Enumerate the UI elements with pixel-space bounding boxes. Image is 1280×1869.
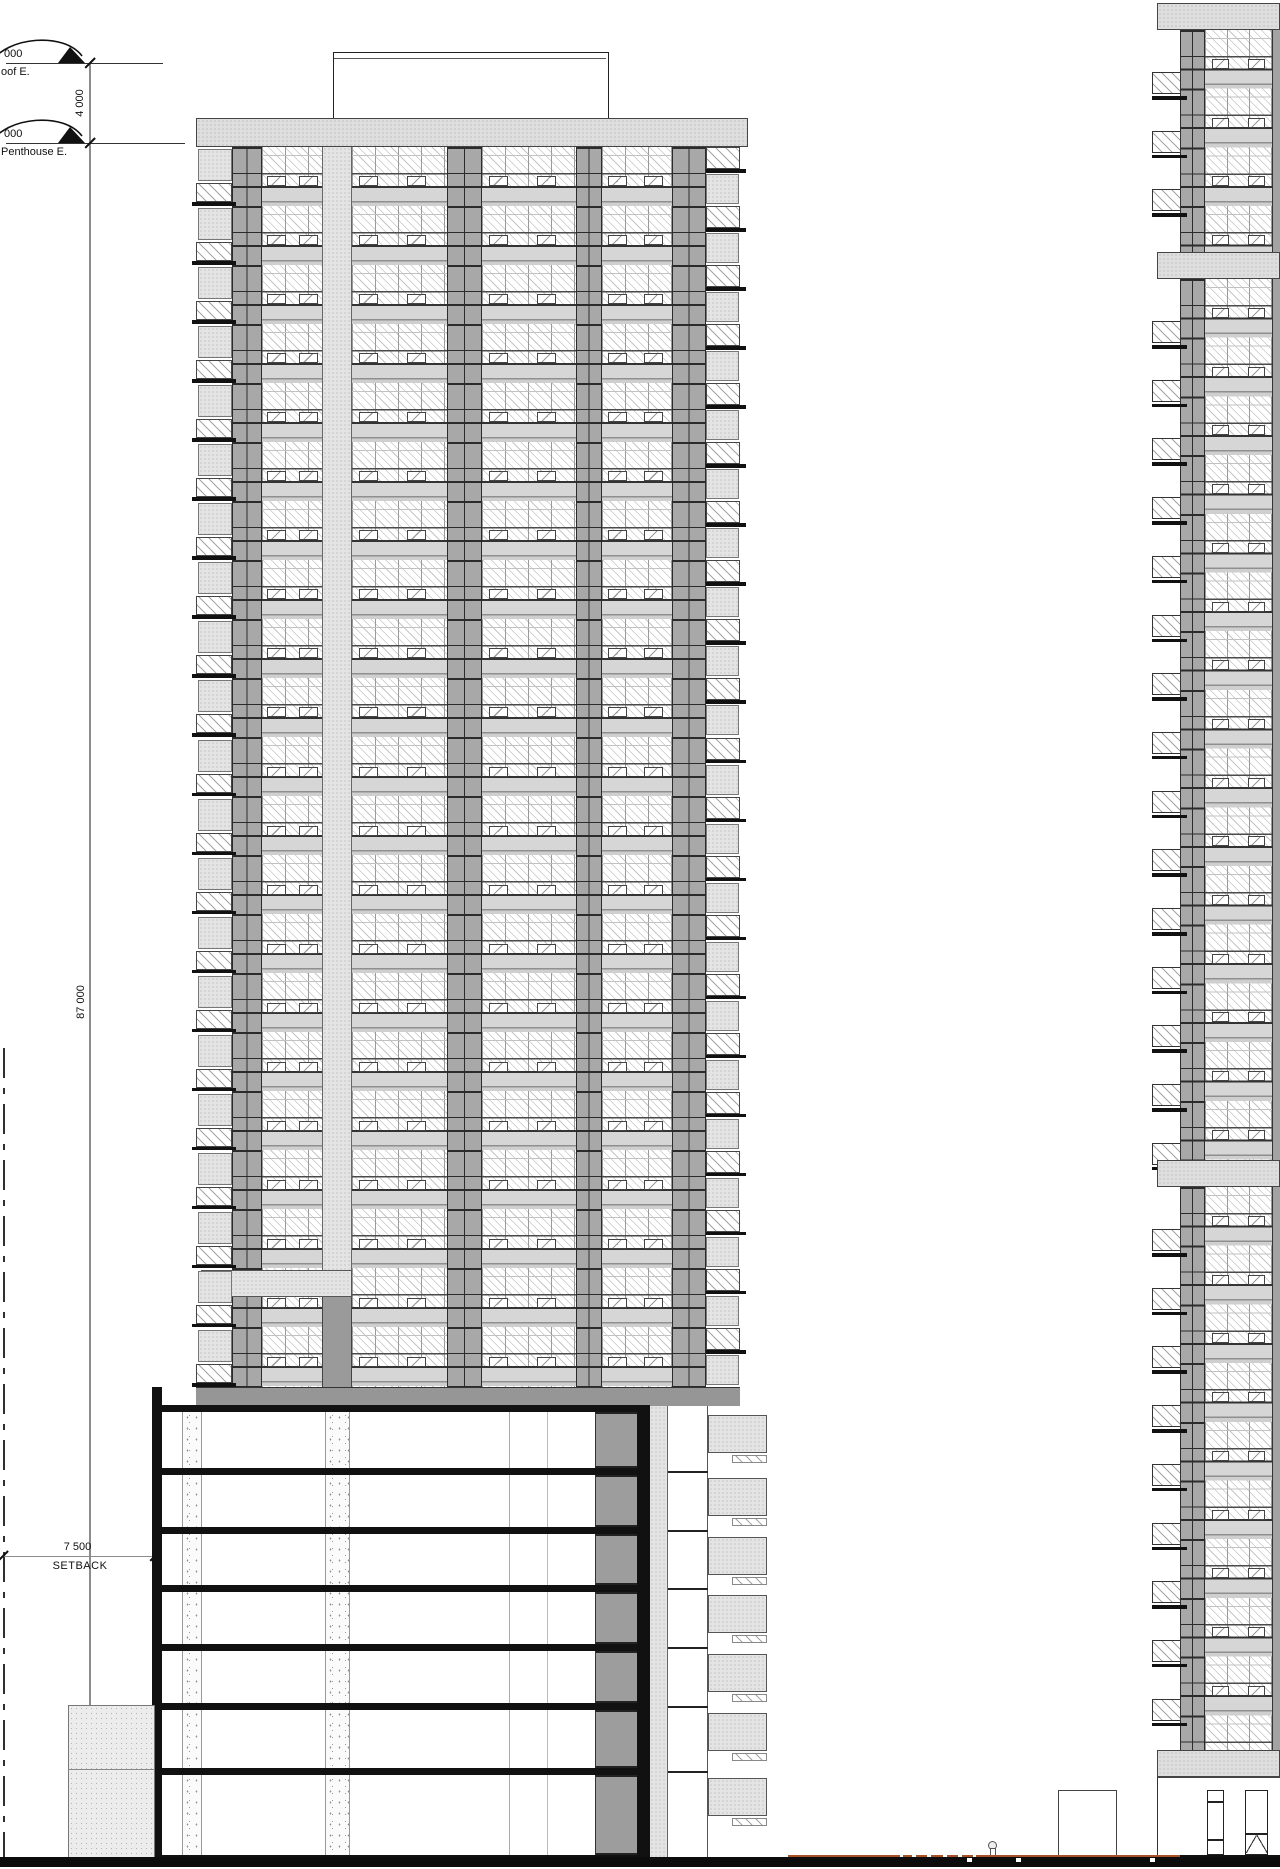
right-strip-balcony-panel (706, 442, 740, 464)
right-strip-stipple-panel (706, 765, 739, 795)
window-vent (407, 944, 426, 954)
left-strip-slab (192, 1029, 236, 1033)
level-penthouse-value: 000 (4, 128, 22, 140)
window-vent (1212, 367, 1229, 377)
podium-floor-slab (155, 1768, 650, 1775)
window-vent (644, 1180, 663, 1190)
window-vent (1212, 1510, 1229, 1520)
window-vent (359, 412, 378, 422)
neighbor-balcony (1152, 1581, 1181, 1603)
neighbor-balcony-slab (1152, 1370, 1187, 1374)
window-vent (489, 176, 508, 186)
left-strip-balcony-panel (196, 360, 232, 379)
left-strip-stipple-panel (198, 740, 232, 772)
neighbor-balcony-slab (1152, 1049, 1187, 1053)
neighbor-balcony (1152, 849, 1181, 871)
window-vent (407, 353, 426, 363)
right-strip-balcony-panel (706, 738, 740, 760)
window-vent (1248, 1510, 1265, 1520)
window-vent (407, 1062, 426, 1072)
left-strip-slab (192, 852, 236, 856)
left-strip-balcony-panel (196, 596, 232, 615)
beyond-hatch-wedge (732, 1455, 767, 1463)
left-strip-balcony-panel (196, 1305, 232, 1324)
left-strip-balcony-panel (196, 774, 232, 793)
right-strip-slab (706, 760, 746, 764)
window-vent (407, 235, 426, 245)
neighbor-balcony (1152, 380, 1181, 402)
right-strip-stipple-panel (706, 1119, 739, 1149)
right-strip-slab (706, 169, 746, 173)
podium-right-panel (595, 1534, 637, 1585)
podium-floor-slab (155, 1585, 650, 1592)
window-vent (537, 1298, 556, 1308)
architectural-sheet: 000 oof E. 000 Penthouse E. 4 000 87 000… (0, 0, 1280, 1869)
ground-line (0, 1857, 1280, 1867)
left-strip-stipple-panel (198, 1330, 232, 1362)
right-strip-stipple-panel (706, 883, 739, 913)
podium-floor-slab (155, 1703, 650, 1710)
window-vent (489, 826, 508, 836)
right-strip-balcony-panel (706, 147, 740, 169)
window-vent (608, 826, 627, 836)
penthouse-roof-box (333, 52, 609, 120)
beyond-floor-line (668, 1771, 708, 1773)
window-vent (608, 1357, 627, 1367)
window-vent (644, 826, 663, 836)
right-strip-balcony-panel (706, 619, 740, 641)
neighbor-pier (1180, 30, 1205, 252)
window-vent (407, 412, 426, 422)
window-vent (359, 1003, 378, 1013)
tower-pier (576, 147, 602, 1387)
window-vent (359, 530, 378, 540)
left-strip-stipple-panel (198, 858, 232, 890)
window-vent (608, 1121, 627, 1131)
kiosk-box (1058, 1790, 1117, 1857)
left-strip-slab (192, 556, 236, 560)
podium-floor-slab (155, 1527, 650, 1534)
window-vent (267, 1003, 286, 1013)
dim-4000-label: 4 000 (74, 83, 86, 123)
neighbor-balcony (1152, 615, 1181, 637)
right-strip-balcony-panel (706, 265, 740, 287)
podium-interior (162, 1412, 650, 1857)
left-strip-slab (192, 1147, 236, 1151)
window-vent (537, 826, 556, 836)
left-strip-balcony-panel (196, 1187, 232, 1206)
window-vent (1248, 1686, 1265, 1696)
neighbor-balcony (1152, 72, 1181, 94)
left-strip-balcony-panel (196, 1069, 232, 1088)
neighbor-balcony (1152, 1464, 1181, 1486)
window-vent (299, 1062, 318, 1072)
window-vent (359, 648, 378, 658)
left-strip-balcony-panel (196, 1010, 232, 1029)
beyond-hatch-wedge (732, 1818, 767, 1826)
beyond-stipple-panel (708, 1654, 767, 1692)
window-vent (489, 235, 508, 245)
window-vent (537, 176, 556, 186)
window-sill (1208, 1839, 1223, 1841)
window-vent (359, 1298, 378, 1308)
neighbor-balcony-slab (1152, 697, 1187, 701)
window-vent (359, 944, 378, 954)
window-vent (359, 235, 378, 245)
right-strip-stipple-panel (706, 469, 739, 499)
window-vent (299, 707, 318, 717)
left-strip-balcony-panel (196, 714, 232, 733)
window-vent (489, 767, 508, 777)
window-vent (359, 589, 378, 599)
window-vent (489, 1357, 508, 1367)
window-vent (267, 294, 286, 304)
neighbor-balcony (1152, 1288, 1181, 1310)
neighbor-balcony (1152, 556, 1181, 578)
neighbor-window-bay (1205, 1187, 1280, 1750)
window-vent (1212, 778, 1229, 788)
window-vent (489, 1121, 508, 1131)
window-vent (299, 767, 318, 777)
window-vent (489, 1239, 508, 1249)
left-strip-stipple-panel (198, 621, 232, 653)
window-vent (267, 353, 286, 363)
left-strip-slab (192, 379, 236, 383)
window-vent (608, 767, 627, 777)
window-vent (407, 471, 426, 481)
vertical-dimension-line (89, 63, 91, 1862)
neighbor-right-edge (1272, 1187, 1280, 1750)
neighbor-balcony-slab (1152, 991, 1187, 995)
beyond-floor-line (668, 1471, 708, 1473)
window-vent (1212, 118, 1229, 128)
ramp-block (68, 1705, 155, 1860)
window-vent (359, 1062, 378, 1072)
window-vent (1212, 660, 1229, 670)
right-strip-stipple-panel (706, 942, 739, 972)
window-vent (359, 294, 378, 304)
ramp-block-divider (68, 1769, 155, 1770)
window-vent (1248, 484, 1265, 494)
window-vent (608, 1239, 627, 1249)
window-vent (537, 1239, 556, 1249)
tower-core-below (322, 1297, 352, 1387)
neighbor-balcony-slab (1152, 639, 1187, 643)
left-strip-slab (192, 261, 236, 265)
left-strip-slab (192, 320, 236, 324)
podium-beyond-panel-column (708, 1406, 768, 1857)
window-vent (1212, 1012, 1229, 1022)
neighbor-balcony (1152, 189, 1181, 211)
right-strip-stipple-panel (706, 646, 739, 676)
window-vent (1248, 235, 1265, 245)
window-vent (608, 1180, 627, 1190)
window-vent (537, 530, 556, 540)
left-strip-stipple-panel (198, 503, 232, 535)
beyond-hatch-wedge (732, 1518, 767, 1526)
window-vent (1248, 660, 1265, 670)
window-vent (608, 707, 627, 717)
neighbor-balcony (1152, 1699, 1181, 1721)
left-strip-balcony-panel (196, 655, 232, 674)
window-vent (267, 471, 286, 481)
window-vent (299, 176, 318, 186)
left-strip-stipple-panel (198, 1094, 232, 1126)
window-vent (537, 412, 556, 422)
window-vent (1248, 1071, 1265, 1081)
window-vent (608, 176, 627, 186)
right-strip-stipple-panel (706, 1060, 739, 1090)
window-vent (1248, 1012, 1265, 1022)
window-vent (407, 530, 426, 540)
window-vent (1248, 1451, 1265, 1461)
window-vent (1212, 59, 1229, 69)
window-vent (608, 1298, 627, 1308)
right-strip-balcony-panel (706, 1151, 740, 1173)
neighbor-balcony-slab (1152, 815, 1187, 819)
right-strip-balcony-panel (706, 974, 740, 996)
window-vent (1212, 235, 1229, 245)
window-vent (299, 589, 318, 599)
left-strip-slab (192, 1088, 236, 1092)
neighbor-slab-band (1157, 252, 1280, 279)
window-vent (537, 235, 556, 245)
ground-gap-3 (1150, 1858, 1155, 1862)
left-strip-stipple-panel (198, 444, 232, 476)
left-strip-stipple-panel (198, 326, 232, 358)
podium-right-panel (595, 1651, 637, 1703)
left-strip-stipple-panel (198, 680, 232, 712)
window-vent (407, 767, 426, 777)
right-strip-slab (706, 1350, 746, 1354)
left-strip-stipple-panel (198, 562, 232, 594)
beyond-hatch-wedge (732, 1694, 767, 1702)
neighbor-balcony (1152, 1084, 1181, 1106)
right-strip-stipple-panel (706, 174, 739, 204)
window-vent (1248, 1568, 1265, 1578)
window-vent (537, 1121, 556, 1131)
tower-left-strip (196, 147, 232, 1387)
window-vent (299, 471, 318, 481)
window-vent (489, 885, 508, 895)
property-ground-red-line (788, 1855, 1180, 1857)
left-strip-balcony-panel (196, 242, 232, 261)
window-vent (299, 235, 318, 245)
window-vent (267, 826, 286, 836)
window-vent (1212, 425, 1229, 435)
window-vent (489, 1298, 508, 1308)
left-strip-stipple-panel (198, 917, 232, 949)
window-vent (299, 1357, 318, 1367)
left-strip-slab (192, 1265, 236, 1269)
level-roof-value: 000 (4, 48, 22, 60)
right-strip-stipple-panel (706, 587, 739, 617)
left-strip-stipple-panel (198, 1271, 232, 1303)
beyond-hatch-wedge (732, 1577, 767, 1585)
roof-slab-band (196, 118, 748, 147)
neighbor-balcony-slab (1152, 96, 1187, 100)
left-strip-balcony-panel (196, 833, 232, 852)
left-strip-slab (192, 1206, 236, 1210)
window-vent (489, 471, 508, 481)
window-vent (1248, 1130, 1265, 1140)
neighbor-slab-band (1157, 3, 1280, 30)
window-vent (1212, 1333, 1229, 1343)
window-vent (267, 235, 286, 245)
window-vent (267, 176, 286, 186)
beyond-floor-line (668, 1530, 708, 1532)
window-vent (407, 1180, 426, 1190)
tower-pier (672, 147, 706, 1387)
penthouse-roof-box-capline (334, 58, 606, 59)
window-vent (359, 176, 378, 186)
left-strip-slab (192, 615, 236, 619)
window-vent (299, 1239, 318, 1249)
right-strip-balcony-panel (706, 1269, 740, 1291)
right-strip-balcony-panel (706, 324, 740, 346)
window-vent (407, 648, 426, 658)
window-vent (608, 648, 627, 658)
right-strip-slab (706, 228, 746, 232)
left-strip-slab (192, 438, 236, 442)
window-vent (359, 353, 378, 363)
window-vent (1248, 543, 1265, 553)
right-strip-stipple-panel (706, 233, 739, 263)
tower-base-band (196, 1387, 740, 1406)
setback-value: 7 500 (0, 1541, 155, 1553)
window-vent (1212, 1130, 1229, 1140)
window-vent (1248, 1333, 1265, 1343)
neighbor-balcony (1152, 321, 1181, 343)
left-strip-stipple-panel (198, 208, 232, 240)
right-strip-slab (706, 641, 746, 645)
neighbor-balcony-slab (1152, 1429, 1187, 1433)
window-vent (537, 1180, 556, 1190)
window-vent (1248, 59, 1265, 69)
right-strip-balcony-panel (706, 1210, 740, 1232)
window-vent (1212, 1686, 1229, 1696)
neighbor-balcony-slab (1152, 345, 1187, 349)
window-vent (644, 885, 663, 895)
window-vent (267, 1357, 286, 1367)
window-vent (537, 707, 556, 717)
podium-right-panel (595, 1412, 637, 1468)
podium-beyond-stipple-strip (650, 1406, 668, 1857)
window-vent (489, 1062, 508, 1072)
right-strip-stipple-panel (706, 824, 739, 854)
window-vent (608, 353, 627, 363)
neighbor-balcony (1152, 131, 1181, 153)
window-vent (1212, 1392, 1229, 1402)
window-vent (644, 944, 663, 954)
neighbor-balcony (1152, 732, 1181, 754)
neighbor-balcony-slab (1152, 1723, 1187, 1727)
window-vent (489, 589, 508, 599)
beyond-hatch-wedge (732, 1635, 767, 1643)
window-vent (1248, 719, 1265, 729)
penthouse-level-line (6, 143, 185, 144)
window-vent (1248, 176, 1265, 186)
window-vent (644, 353, 663, 363)
window-vent (267, 1180, 286, 1190)
level-penthouse-label: Penthouse E. (1, 146, 67, 158)
window-vent (537, 648, 556, 658)
window-vent (608, 235, 627, 245)
tower-pier (447, 147, 482, 1387)
neighbor-balcony-slab (1152, 1547, 1187, 1551)
window-vent (1248, 425, 1265, 435)
window-vent (1248, 778, 1265, 788)
left-strip-balcony-panel (196, 1364, 232, 1383)
left-strip-stipple-panel (198, 385, 232, 417)
window-vent (1212, 1451, 1229, 1461)
neighbor-balcony-slab (1152, 404, 1187, 408)
right-strip-stipple-panel (706, 1296, 739, 1326)
window-vent (299, 1121, 318, 1131)
window-vent (489, 648, 508, 658)
window-vent (608, 1003, 627, 1013)
window-vent (644, 530, 663, 540)
right-strip-balcony-panel (706, 915, 740, 937)
beyond-floor-line (668, 1588, 708, 1590)
window-vent (299, 353, 318, 363)
podium-beyond-white-column (668, 1406, 708, 1857)
window-vent (608, 412, 627, 422)
right-strip-stipple-panel (706, 351, 739, 381)
tower-core-strip (322, 147, 352, 1270)
left-strip-balcony-panel (196, 478, 232, 497)
neighbor-ground-door (1245, 1790, 1268, 1855)
window-vent (267, 412, 286, 422)
window-vent (299, 826, 318, 836)
right-strip-slab (706, 582, 746, 586)
window-vent (644, 471, 663, 481)
neighbor-right-edge (1272, 30, 1280, 252)
tower-right-strip (706, 147, 740, 1387)
window-vent (359, 1121, 378, 1131)
window-vent (299, 1003, 318, 1013)
right-strip-slab (706, 405, 746, 409)
right-strip-slab (706, 464, 746, 468)
window-vent (1212, 484, 1229, 494)
window-vent (644, 412, 663, 422)
window-vent (407, 707, 426, 717)
beyond-floor-line (668, 1706, 708, 1708)
podium-right-wall (637, 1412, 650, 1857)
beyond-floor-line (668, 1647, 708, 1649)
window-vent (407, 1003, 426, 1013)
left-strip-slab (192, 1383, 236, 1387)
window-vent (359, 1357, 378, 1367)
right-strip-slab (706, 937, 746, 941)
window-vent (359, 767, 378, 777)
right-strip-stipple-panel (706, 1355, 739, 1385)
window-vent (299, 885, 318, 895)
window-vent (644, 1062, 663, 1072)
window-vent (299, 648, 318, 658)
window-vent (537, 944, 556, 954)
left-strip-balcony-panel (196, 419, 232, 438)
neighbor-balcony (1152, 967, 1181, 989)
right-strip-balcony-panel (706, 678, 740, 700)
left-strip-stipple-panel (198, 976, 232, 1008)
window-vent (644, 589, 663, 599)
left-strip-stipple-panel (198, 799, 232, 831)
right-strip-slab (706, 819, 746, 823)
window-vent (489, 353, 508, 363)
window-vent (299, 944, 318, 954)
right-strip-balcony-panel (706, 501, 740, 523)
